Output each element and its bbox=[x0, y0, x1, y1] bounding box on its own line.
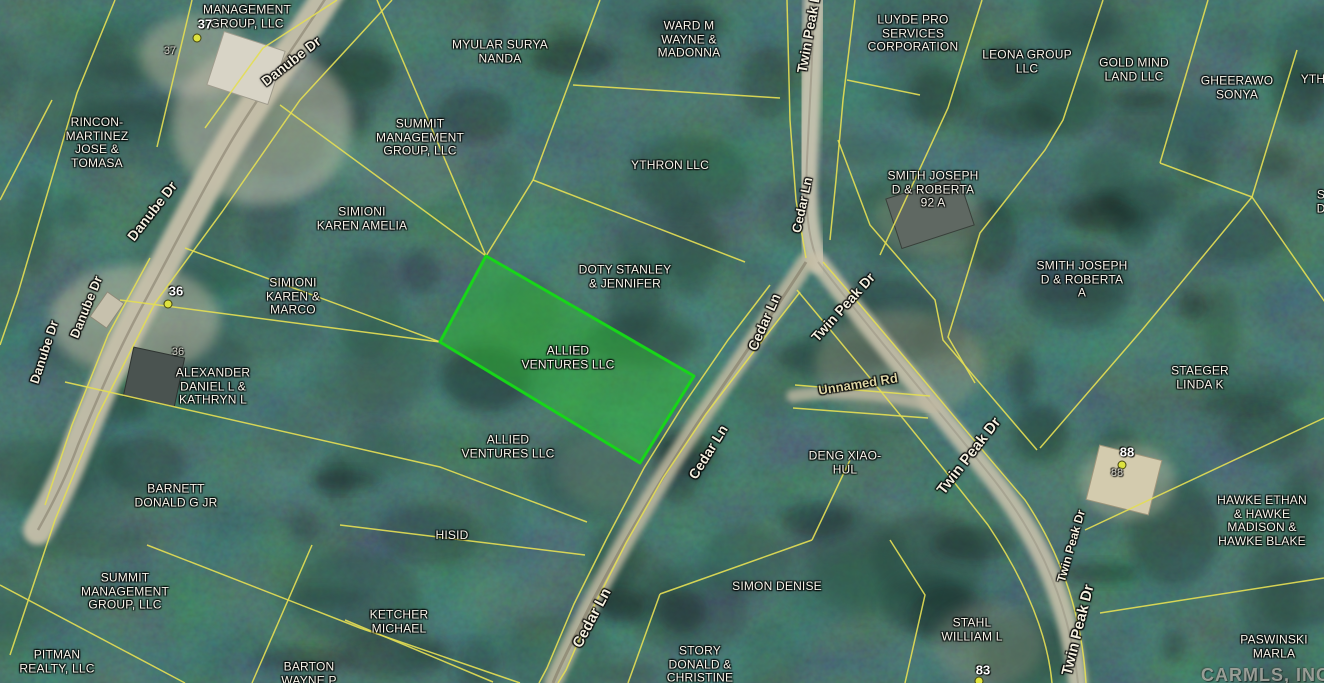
parcel-owner-label-line: PITMAN bbox=[19, 648, 94, 662]
parcel-owner-label: SMITH JOSEPHD & ROBERTA92 A bbox=[887, 170, 978, 211]
parcel-owner-label-line: GROUP, LLC bbox=[376, 145, 464, 159]
parcel-owner-label-line: S bbox=[1317, 188, 1324, 202]
parcel-owner-label: RINCON-MARTINEZJOSE &TOMASA bbox=[66, 116, 129, 170]
road-name-label: Danube Dr bbox=[258, 33, 324, 89]
parcel-owner-label: WARD MWAYNE &MADONNA bbox=[658, 20, 721, 61]
road-name-label: Danube Dr bbox=[27, 318, 62, 385]
parcel-owner-label: PITMANREALTY, LLC bbox=[19, 648, 94, 675]
watermark: CARMLS, INC bbox=[1201, 665, 1324, 683]
road-name-label: Cedar Ln bbox=[569, 585, 615, 650]
parcel-owner-label-line: TOMASA bbox=[66, 157, 129, 171]
road-name-label: Unnamed Rd bbox=[817, 370, 899, 397]
road-name-label: Danube Dr bbox=[67, 274, 106, 341]
parcel-owner-label: YTH bbox=[1301, 73, 1324, 87]
parcel-owner-label: STORYDONALD &CHRISTINE bbox=[667, 645, 733, 683]
parcel-owner-label-line: CHRISTINE bbox=[667, 672, 733, 683]
parcel-owner-label-line: HUL bbox=[809, 463, 882, 477]
parcel-owner-label: SD bbox=[1317, 188, 1324, 215]
parcel-owner-label: GHEERAWOSONYA bbox=[1201, 74, 1274, 101]
parcel-owner-label-line: JOSE & bbox=[66, 143, 129, 157]
parcel-owner-label-line: STAEGER bbox=[1171, 364, 1229, 378]
parcel-owner-label-line: ALLIED bbox=[521, 344, 614, 358]
parcel-owner-label-line: MADISON & bbox=[1217, 521, 1307, 535]
parcel-owner-label-line: YTH bbox=[1301, 73, 1324, 87]
parcel-owner-label-line: GOLD MIND bbox=[1099, 56, 1169, 70]
parcel-owner-label-line: STAHL bbox=[941, 616, 1002, 630]
lot-number: 36 bbox=[172, 346, 184, 358]
parcel-owner-label-line: BARNETT bbox=[135, 482, 218, 496]
parcel-owner-label: HAWKE ETHAN& HAWKEMADISON &HAWKE BLAKE bbox=[1217, 494, 1307, 548]
parcel-owner-label: BARTONWAYNE P bbox=[281, 660, 336, 683]
parcel-map-viewport[interactable]: MANAGEMENTGROUP, LLCMYULAR SURYANANDAWAR… bbox=[0, 0, 1324, 683]
parcel-owner-label-line: MICHAEL bbox=[370, 622, 429, 636]
parcel-owner-label-line: VENTURES LLC bbox=[521, 358, 614, 372]
parcel-owner-label: ALEXANDERDANIEL L &KATHRYN L bbox=[176, 367, 251, 408]
parcel-owner-label-line: SIMIONI bbox=[266, 277, 320, 291]
parcel-owner-label: SIMIONIKAREN AMELIA bbox=[317, 205, 407, 232]
parcel-owner-label-line: MYULAR SURYA bbox=[452, 38, 548, 52]
parcel-owner-label-line: BARTON bbox=[281, 660, 336, 674]
road-name-label: Twin Peak Dr bbox=[794, 0, 825, 74]
parcel-owner-label-line: KATHRYN L bbox=[176, 394, 251, 408]
parcel-owner-label-line: LAND LLC bbox=[1099, 70, 1169, 84]
parcel-owner-label-line: SIMIONI bbox=[317, 205, 407, 219]
parcel-owner-label: STAHLWILLIAM L bbox=[941, 616, 1002, 643]
parcel-owner-label: ALLIEDVENTURES LLC bbox=[521, 344, 614, 371]
parcel-owner-label: HISID bbox=[435, 529, 468, 543]
parcel-owner-label: MANAGEMENTGROUP, LLC bbox=[203, 3, 291, 30]
parcel-owner-label-line: DENG XIAO- bbox=[809, 449, 882, 463]
parcel-owner-label-line: SMITH JOSEPH bbox=[1036, 260, 1127, 274]
road-name-label: Cedar Ln bbox=[685, 422, 731, 482]
parcel-owner-label-line: MADONNA bbox=[658, 47, 721, 61]
parcel-owner-label-line: 92 A bbox=[887, 197, 978, 211]
road-name-label: Danube Dr bbox=[124, 178, 180, 244]
road-name-label: Twin Peak Dr bbox=[1058, 583, 1097, 677]
parcel-owner-label-line: D bbox=[1317, 202, 1324, 216]
parcel-owner-label-line: REALTY, LLC bbox=[19, 662, 94, 676]
parcel-owner-label: DOTY STANLEY& JENNIFER bbox=[579, 263, 672, 290]
parcel-owner-label: GOLD MINDLAND LLC bbox=[1099, 56, 1169, 83]
parcel-owner-label-line: HISID bbox=[435, 529, 468, 543]
road-name-label: Cedar Ln bbox=[789, 176, 815, 234]
parcel-owner-label-line: SUMMIT bbox=[81, 572, 169, 586]
parcel-owner-label: SMITH JOSEPHD & ROBERTAA bbox=[1036, 260, 1127, 301]
parcel-owner-label-line: WAYNE P bbox=[281, 674, 336, 683]
parcel-owner-label: KETCHERMICHAEL bbox=[370, 608, 429, 635]
lot-number: 37 bbox=[198, 17, 212, 32]
road-name-label: Twin Peak Dr bbox=[808, 269, 878, 344]
parcel-owner-label-line: A bbox=[1036, 287, 1127, 301]
parcel-owner-label-line: CORPORATION bbox=[868, 41, 959, 55]
lot-number: 37 bbox=[164, 45, 176, 57]
parcel-owner-label-line: GHEERAWO bbox=[1201, 74, 1274, 88]
lot-number: 83 bbox=[976, 663, 990, 678]
parcel-owner-label-line: WILLIAM L bbox=[941, 630, 1002, 644]
parcel-owner-label: STAEGERLINDA K bbox=[1171, 364, 1229, 391]
parcel-owner-label-line: SMITH JOSEPH bbox=[887, 170, 978, 184]
parcel-owner-label-line: MANAGEMENT bbox=[203, 3, 291, 17]
parcel-owner-label-line: SIMON DENISE bbox=[732, 580, 822, 594]
parcel-owner-label-line: LLC bbox=[982, 62, 1072, 76]
road-name-label: Twin Peak Dr bbox=[934, 414, 1005, 498]
parcel-owner-label: DENG XIAO-HUL bbox=[809, 449, 882, 476]
parcel-owner-label-line: MARLA bbox=[1240, 647, 1308, 661]
lot-number: 88 bbox=[1120, 445, 1134, 460]
parcel-owner-label: SUMMITMANAGEMENTGROUP, LLC bbox=[81, 572, 169, 613]
parcel-owner-label-line: GROUP, LLC bbox=[81, 599, 169, 613]
road-name-label: Cedar Ln bbox=[744, 291, 783, 353]
parcel-owner-label-line: RINCON- bbox=[66, 116, 129, 130]
labels-layer: MANAGEMENTGROUP, LLCMYULAR SURYANANDAWAR… bbox=[0, 0, 1324, 683]
parcel-owner-label: MYULAR SURYANANDA bbox=[452, 38, 548, 65]
road-name-label: Twin Peak Dr bbox=[1054, 508, 1088, 583]
parcel-owner-label: LUYDE PROSERVICESCORPORATION bbox=[868, 14, 959, 55]
parcel-owner-label-line: MARCO bbox=[266, 304, 320, 318]
parcel-owner-label-line: HAWKE BLAKE bbox=[1217, 535, 1307, 549]
parcel-owner-label-line: LINDA K bbox=[1171, 378, 1229, 392]
parcel-owner-label-line: LUYDE PRO bbox=[868, 14, 959, 28]
parcel-owner-label-line: LEONA GROUP bbox=[982, 48, 1072, 62]
parcel-owner-label: SIMON DENISE bbox=[732, 580, 822, 594]
parcel-owner-label-line: WARD M bbox=[658, 20, 721, 34]
parcel-owner-label-line: & JENNIFER bbox=[579, 277, 672, 291]
lot-number: 36 bbox=[169, 284, 183, 299]
parcel-owner-label-line: KAREN AMELIA bbox=[317, 219, 407, 233]
parcel-owner-label-line: SONYA bbox=[1201, 88, 1274, 102]
parcel-owner-label-line: GROUP, LLC bbox=[203, 17, 291, 31]
parcel-owner-label-line: STORY bbox=[667, 645, 733, 659]
parcel-owner-label-line: SUMMIT bbox=[376, 118, 464, 132]
parcel-owner-label-line: DONALD G JR bbox=[135, 496, 218, 510]
parcel-owner-label-line: ALEXANDER bbox=[176, 367, 251, 381]
parcel-owner-label: PASWINSKIMARLA bbox=[1240, 633, 1308, 660]
parcel-owner-label-line: PASWINSKI bbox=[1240, 633, 1308, 647]
parcel-owner-label-line: DOTY STANLEY bbox=[579, 263, 672, 277]
lot-number: 88 bbox=[1111, 467, 1123, 479]
parcel-owner-label: SUMMITMANAGEMENTGROUP, LLC bbox=[376, 118, 464, 159]
parcel-owner-label: LEONA GROUPLLC bbox=[982, 48, 1072, 75]
parcel-owner-label-line: KETCHER bbox=[370, 608, 429, 622]
parcel-owner-label: BARNETTDONALD G JR bbox=[135, 482, 218, 509]
parcel-owner-label-line: YTHRON LLC bbox=[631, 159, 709, 173]
parcel-owner-label-line: VENTURES LLC bbox=[461, 447, 554, 461]
parcel-owner-label: SIMIONIKAREN &MARCO bbox=[266, 277, 320, 318]
parcel-owner-label: YTHRON LLC bbox=[631, 159, 709, 173]
parcel-owner-label: ALLIEDVENTURES LLC bbox=[461, 433, 554, 460]
parcel-owner-label-line: ALLIED bbox=[461, 433, 554, 447]
parcel-owner-label-line: HAWKE ETHAN bbox=[1217, 494, 1307, 508]
parcel-owner-label-line: NANDA bbox=[452, 52, 548, 66]
